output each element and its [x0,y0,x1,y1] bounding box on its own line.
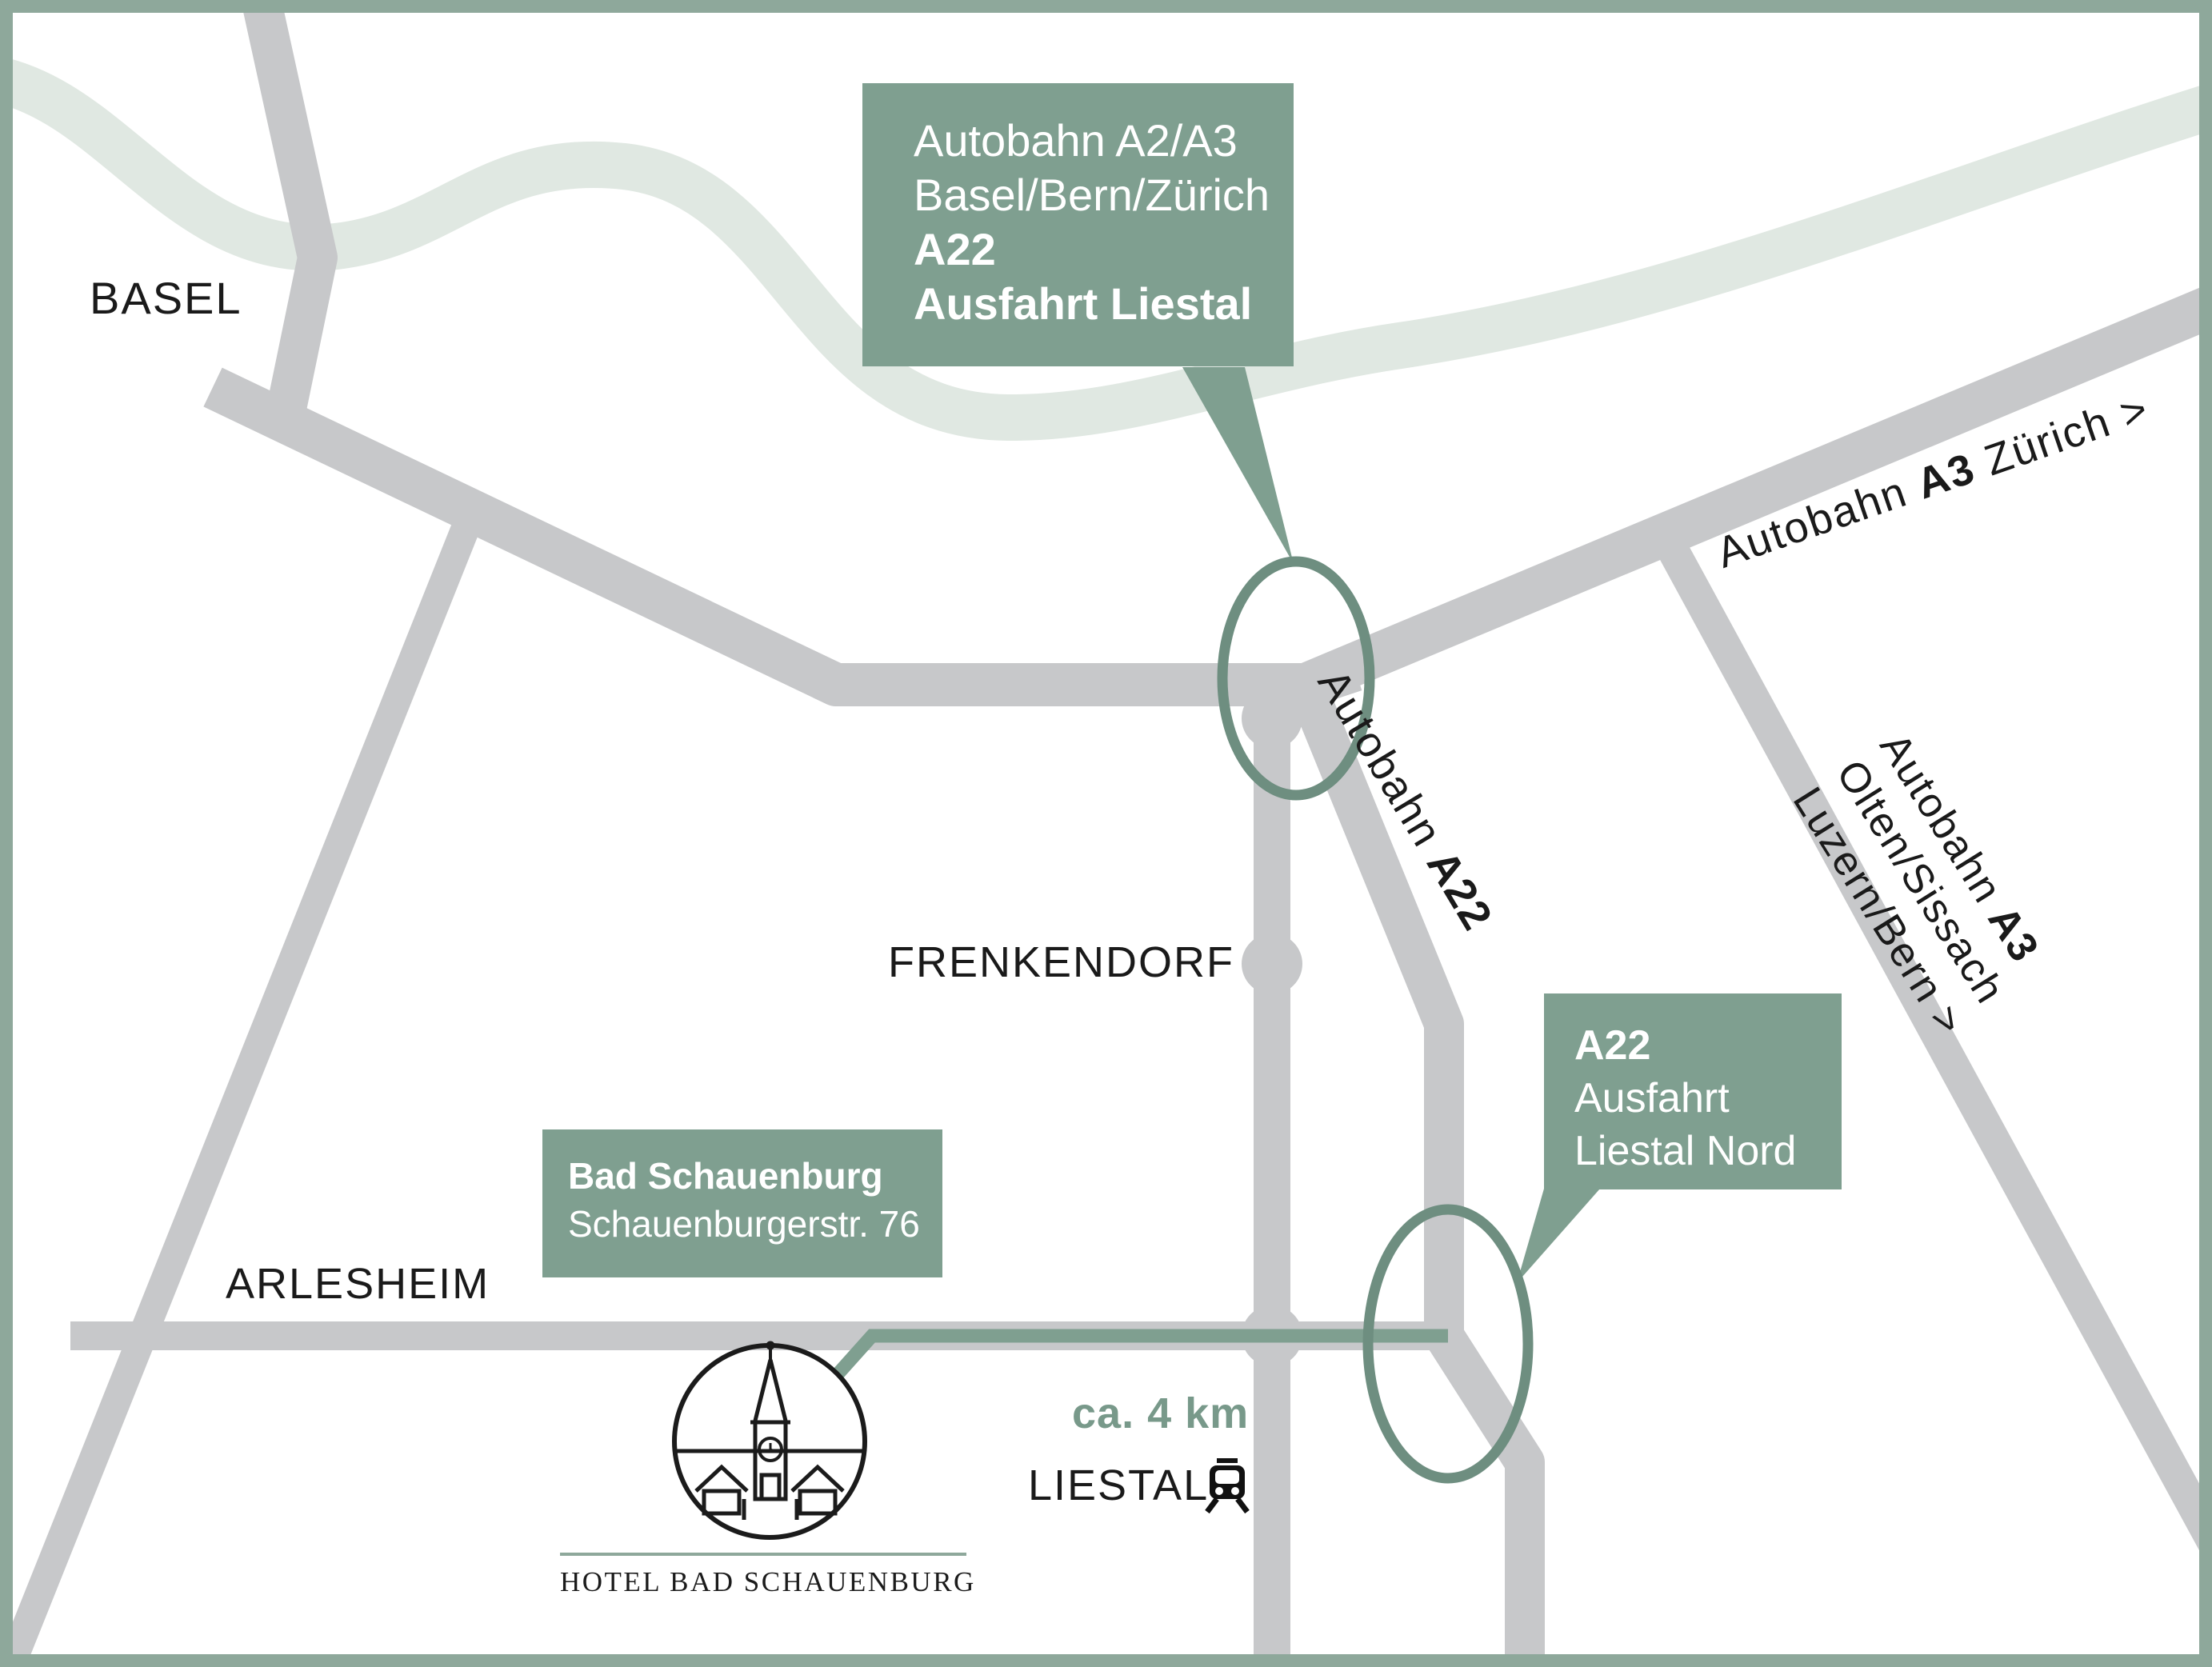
hotel-logo-icon [674,1342,865,1537]
exit-liestal-nord-line1: A22 [1574,1019,1842,1072]
exit-liestal-nord-line3: Liestal Nord [1574,1125,1842,1177]
hotel-caption: HOTEL BAD SCHAUENBURG [560,1566,968,1598]
exit-liestal-line1: Autobahn A2/A3 [914,114,1294,168]
town-dot-north [1242,688,1302,749]
hotel-street: Schauenburgerstr. 76 [568,1200,942,1248]
distance-label: ca. 4 km [1072,1389,1249,1438]
town-dot-frenkendorf [1242,933,1302,994]
callout-exit-liestal: Autobahn A2/A3 Basel/Bern/Zürich A22 Aus… [862,83,1294,366]
label-liestal: LIESTAL [1028,1461,1209,1510]
road-autobahn-a2 [213,387,1306,685]
exit-liestal-line2: Basel/Bern/Zürich [914,168,1294,222]
train-station-icon [1207,1461,1247,1512]
callout-exit-liestal-nord: A22 Ausfahrt Liestal Nord [1544,993,1842,1189]
road-arlesheim-diagonal [13,512,472,1661]
label-frenkendorf: FRENKENDORF [888,937,1234,987]
label-basel: BASEL [90,272,242,324]
exit-liestal-line3: A22 [914,222,1294,277]
exit-liestal-line4: Ausfahrt Liestal [914,277,1294,331]
callout-hotel-address: Bad Schauenburg Schauenburgerstr. 76 [542,1129,942,1277]
label-arlesheim: ARLESHEIM [226,1259,490,1309]
hotel-route-line [838,1336,1448,1374]
map-canvas: BASEL ARLESHEIM FRENKENDORF LIESTAL Auto… [0,0,2212,1667]
hotel-caption-rule [560,1553,966,1556]
exit-liestal-nord-line2: Ausfahrt [1574,1072,1842,1125]
hotel-name: Bad Schauenburg [568,1152,942,1200]
callout-pointer-exit-liestal-nord [1517,1189,1600,1283]
road-basel-north [258,0,318,432]
